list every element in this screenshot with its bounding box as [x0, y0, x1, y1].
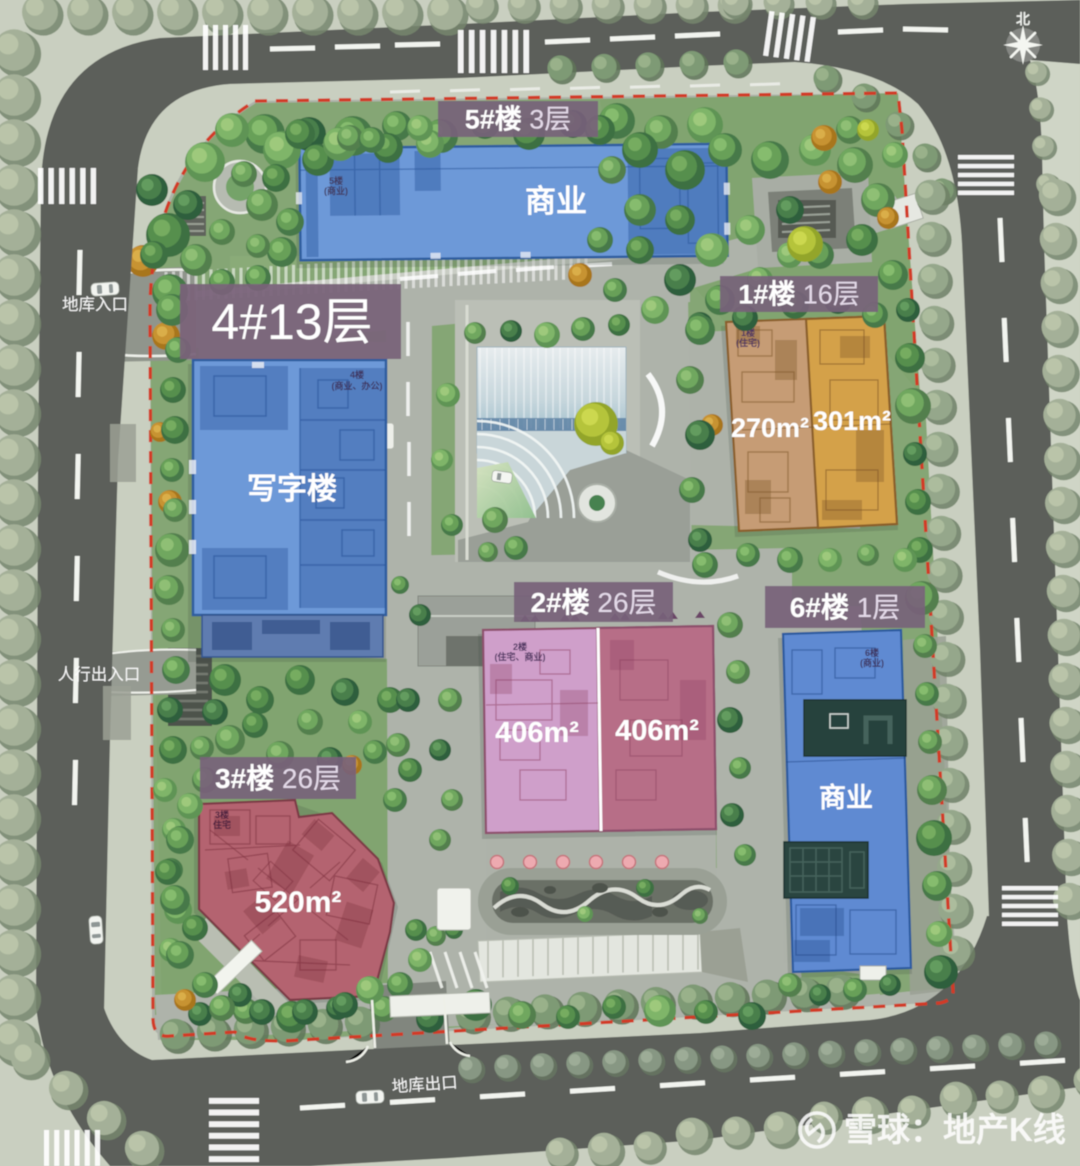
svg-text:6楼: 6楼 [865, 647, 879, 658]
svg-text:人行出入口: 人行出入口 [58, 665, 141, 684]
svg-text:3#楼 26层: 3#楼 26层 [215, 763, 341, 794]
svg-text:3楼: 3楼 [215, 809, 229, 820]
svg-text:写字楼: 写字楼 [247, 472, 337, 506]
svg-text:270m²: 270m² [731, 413, 809, 443]
svg-text:5#楼 3层: 5#楼 3层 [465, 105, 572, 135]
svg-text:4#13层: 4#13层 [211, 294, 372, 350]
svg-text:2#楼 26层: 2#楼 26层 [530, 587, 656, 618]
svg-text:(商业、办公): (商业、办公) [332, 380, 383, 391]
svg-text:6#楼 1层: 6#楼 1层 [790, 592, 901, 623]
svg-text:4楼: 4楼 [350, 369, 364, 380]
svg-text:住宅: 住宅 [213, 819, 231, 830]
svg-text:1#楼 16层: 1#楼 16层 [738, 280, 860, 310]
svg-text:301m²: 301m² [813, 406, 891, 436]
svg-text:406m²: 406m² [615, 715, 699, 747]
svg-text:地库入口: 地库入口 [62, 295, 128, 314]
svg-text:商业: 商业 [819, 783, 873, 813]
svg-text:北: 北 [1016, 11, 1030, 27]
svg-text:520m²: 520m² [255, 886, 342, 919]
svg-text:2楼: 2楼 [513, 641, 527, 652]
svg-text:商业: 商业 [525, 184, 587, 219]
svg-text:雪球：地产K线: 雪球：地产K线 [844, 1111, 1066, 1148]
svg-text:(商业): (商业) [860, 657, 884, 668]
svg-text:(住宅): (住宅) [736, 337, 760, 348]
svg-text:406m²: 406m² [495, 717, 579, 749]
svg-text:5楼: 5楼 [329, 175, 343, 186]
svg-text:(商业): (商业) [324, 185, 348, 196]
svg-text:(住宅、商业): (住宅、商业) [495, 651, 546, 662]
